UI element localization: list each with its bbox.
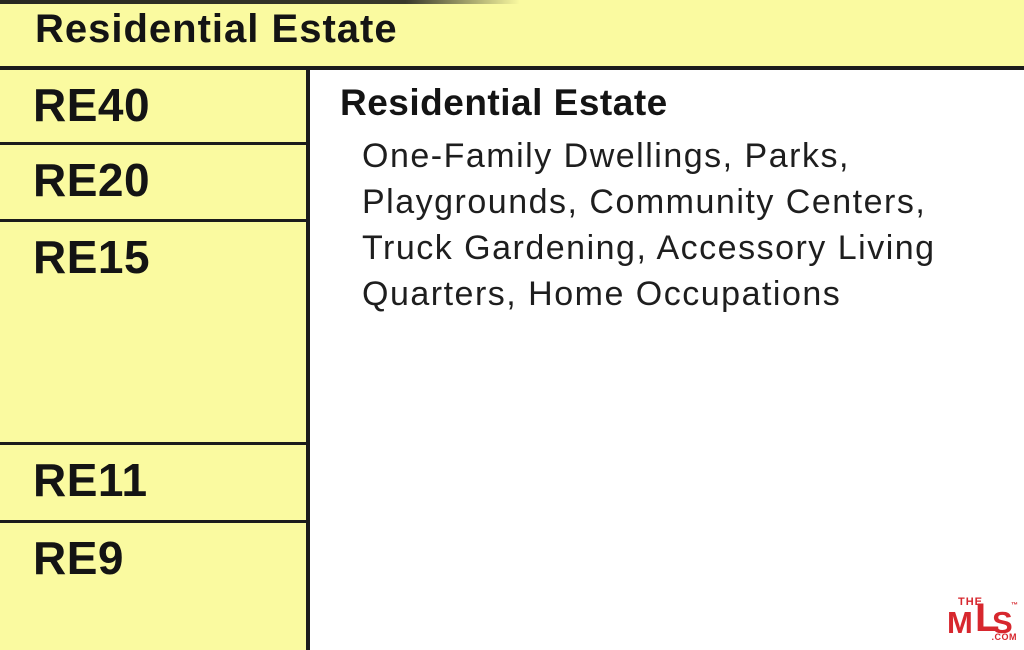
zone-label-re15: RE15 [33, 231, 306, 284]
table-header: Residential Estate [0, 0, 1024, 70]
top-border-line [0, 0, 520, 4]
zoning-table-page: Residential Estate RE40 RE20 RE15 RE11 R… [0, 0, 1024, 650]
mls-logo-trademark: ™ [1011, 602, 1018, 609]
zone-label-re9: RE9 [33, 532, 306, 585]
mls-logo-com-text: .COM [992, 633, 1018, 642]
zone-label-re40: RE40 [33, 79, 306, 132]
zone-label-re20: RE20 [33, 154, 306, 207]
zone-code-column: RE40 RE20 RE15 RE11 RE9 [0, 70, 310, 650]
zone-category-heading: Residential Estate [340, 82, 1024, 124]
the-mls-logo: THE M L S ™ .COM [947, 596, 1017, 643]
page-title: Residential Estate [0, 0, 1024, 52]
mls-logo-m-letter: M [947, 607, 973, 638]
zone-row-re9: RE9 [0, 523, 306, 650]
zone-uses-description: One-Family Dwellings, Parks, Playgrounds… [362, 133, 1002, 317]
zone-description-panel: Residential Estate One-Family Dwellings,… [310, 70, 1024, 650]
zone-label-re11: RE11 [33, 454, 306, 507]
zone-row-re11: RE11 [0, 445, 306, 523]
zone-row-re15: RE15 [0, 222, 306, 445]
zone-row-re20: RE20 [0, 145, 306, 222]
zone-row-re40: RE40 [0, 70, 306, 145]
